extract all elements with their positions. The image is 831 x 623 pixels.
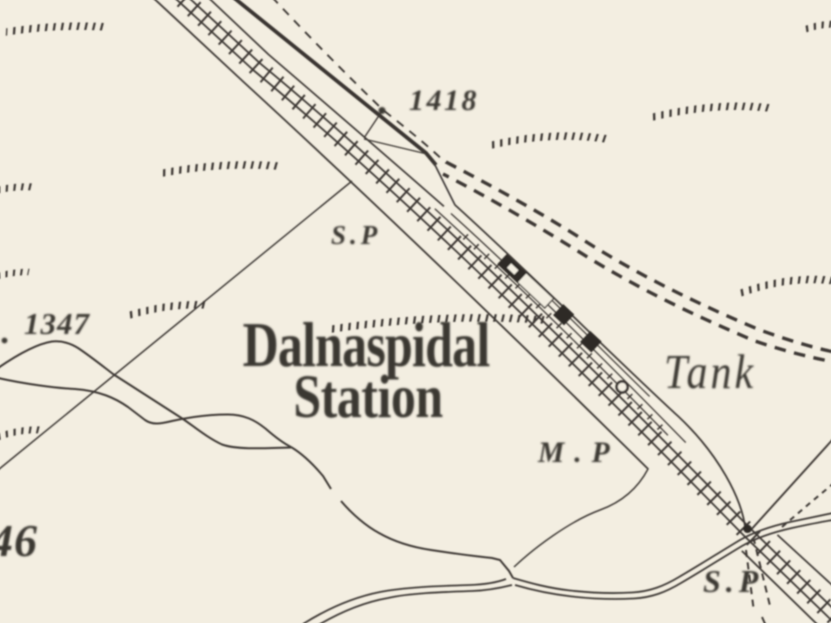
svg-text:1347: 1347 [24,306,91,341]
svg-text:1418: 1418 [409,84,479,117]
svg-text:S.P: S.P [703,563,763,599]
svg-text:1346: 1346 [0,515,38,566]
svg-text:M.P: M.P [537,437,620,469]
svg-text:Station: Station [293,363,443,431]
svg-text:S.P: S.P [331,220,381,250]
svg-text:Tank: Tank [664,345,756,398]
